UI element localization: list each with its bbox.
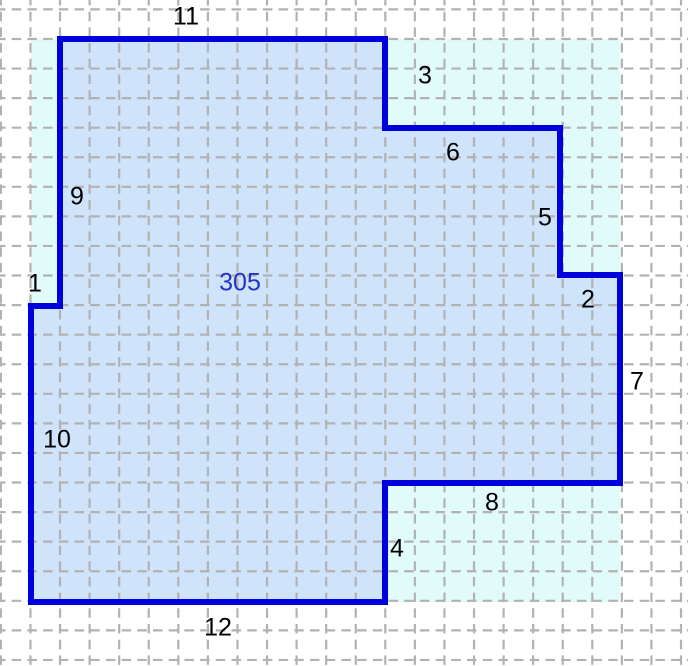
- side-label-6: 6: [446, 141, 460, 166]
- geometry-diagram: 1 2 3 4 5 6 7 8 9 10 11 12 305: [0, 0, 688, 666]
- side-label-2: 2: [581, 288, 595, 313]
- area-label: 305: [219, 271, 261, 296]
- figure-svg: [0, 0, 688, 666]
- side-label-10: 10: [43, 428, 71, 453]
- side-label-9: 9: [70, 185, 84, 210]
- side-label-11: 11: [173, 5, 199, 30]
- side-label-4: 4: [390, 537, 404, 562]
- side-label-5: 5: [538, 206, 552, 231]
- side-label-1: 1: [28, 272, 42, 297]
- side-label-7: 7: [630, 370, 644, 395]
- side-label-8: 8: [485, 491, 499, 516]
- side-label-3: 3: [418, 64, 432, 89]
- side-label-12: 12: [204, 616, 232, 641]
